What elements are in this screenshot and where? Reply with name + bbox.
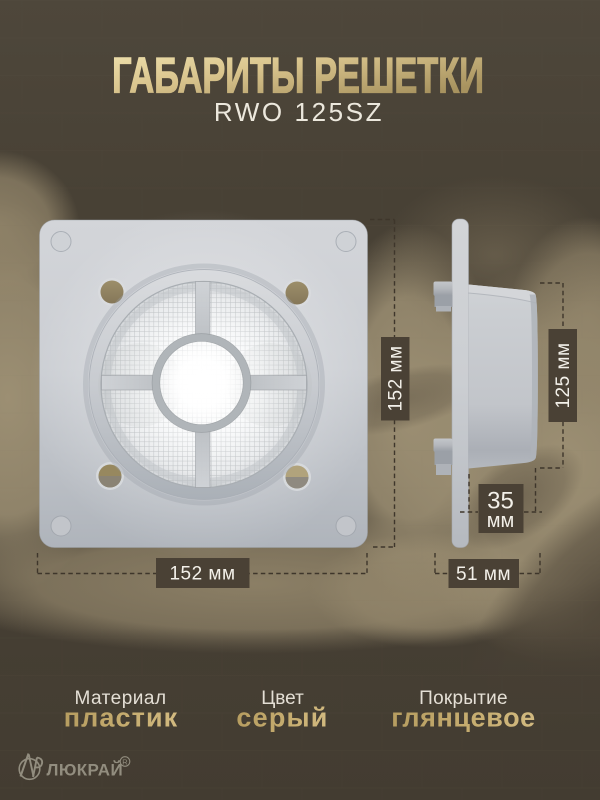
- svg-text:125 мм: 125 мм: [553, 342, 574, 408]
- svg-text:ЛЮКРАЙ: ЛЮКРАЙ: [47, 761, 124, 780]
- svg-text:глянцевое: глянцевое: [391, 703, 536, 733]
- svg-text:ГАБАРИТЫ РЕШЕТКИ: ГАБАРИТЫ РЕШЕТКИ: [112, 48, 484, 104]
- svg-text:51 мм: 51 мм: [456, 564, 511, 585]
- svg-text:152 мм: 152 мм: [386, 345, 407, 411]
- svg-text:152 мм: 152 мм: [169, 564, 235, 585]
- svg-text:серый: серый: [236, 703, 328, 733]
- svg-text:R: R: [122, 758, 128, 767]
- svg-text:RWO 125SZ: RWO 125SZ: [214, 97, 384, 127]
- svg-text:мм: мм: [487, 510, 515, 532]
- svg-text:пластик: пластик: [64, 703, 179, 733]
